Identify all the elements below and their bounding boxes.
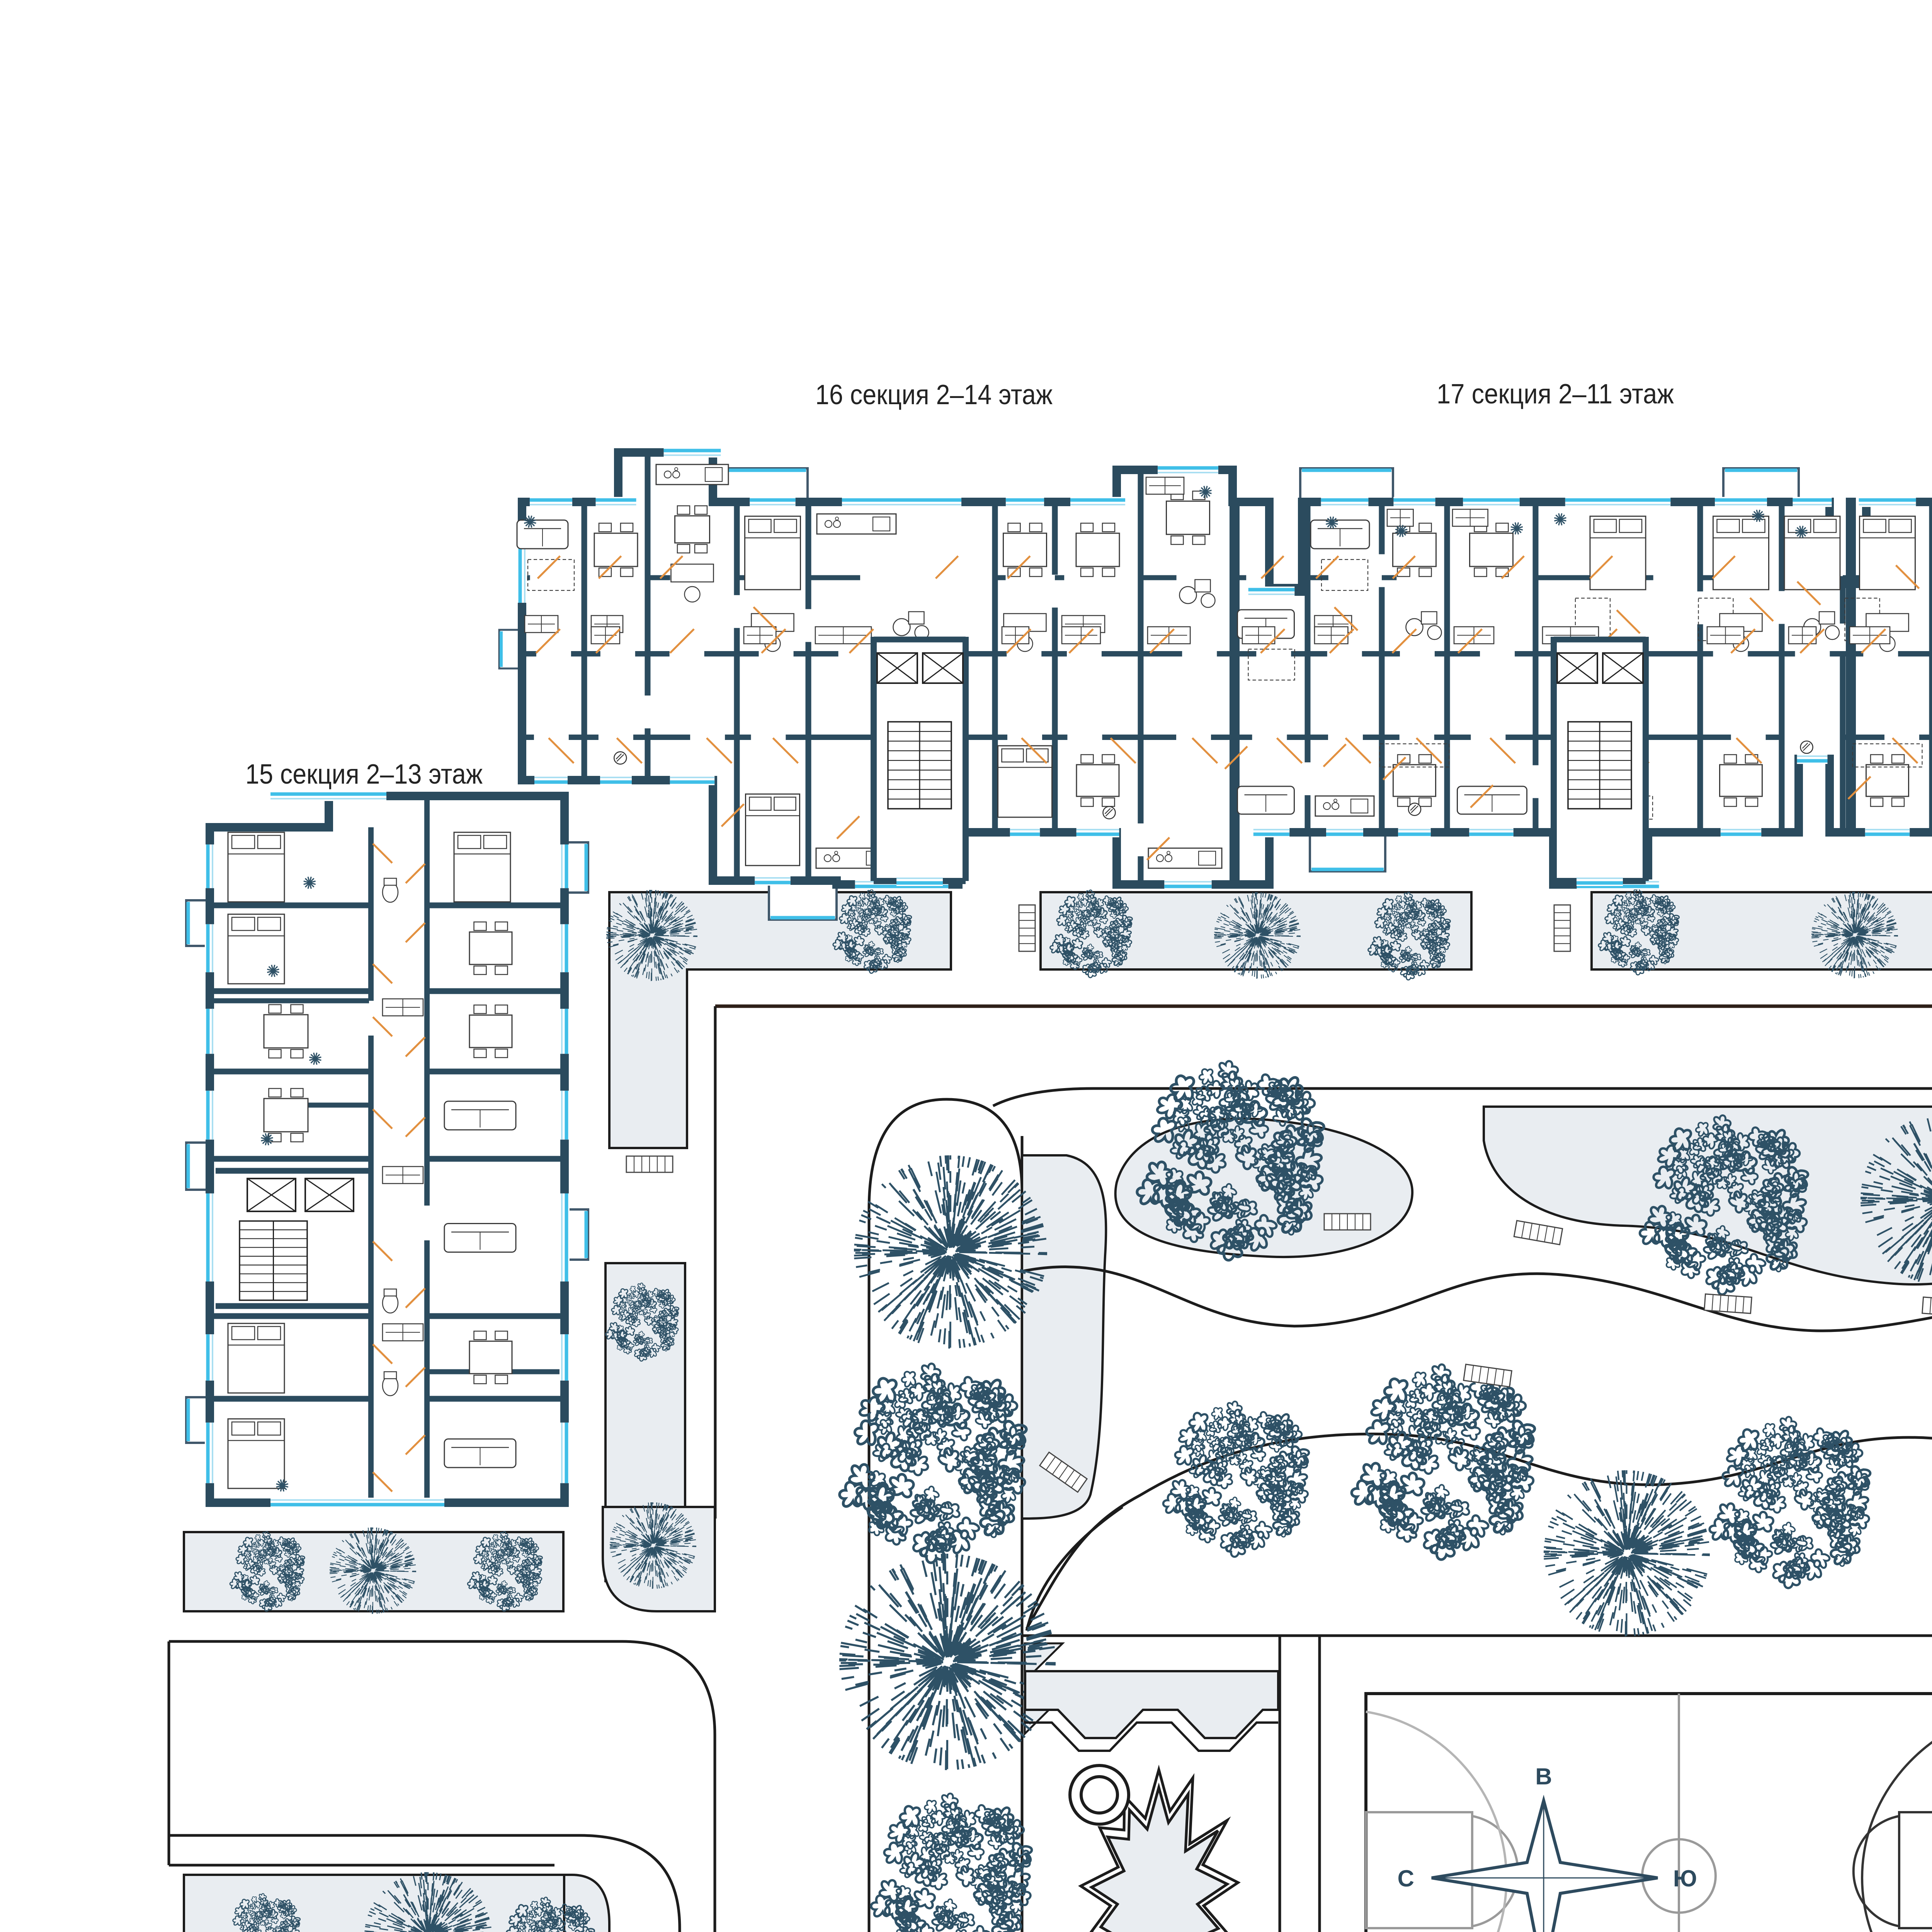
svg-text:15 секция 2–13 этаж: 15 секция 2–13 этаж <box>245 759 483 790</box>
svg-text:С: С <box>1398 1866 1414 1891</box>
svg-text:Ю: Ю <box>1673 1866 1697 1891</box>
svg-text:16 секция 2–14 этаж: 16 секция 2–14 этаж <box>815 379 1053 410</box>
svg-text:17 секция 2–11 этаж: 17 секция 2–11 этаж <box>1437 379 1674 410</box>
svg-text:В: В <box>1535 1764 1552 1789</box>
